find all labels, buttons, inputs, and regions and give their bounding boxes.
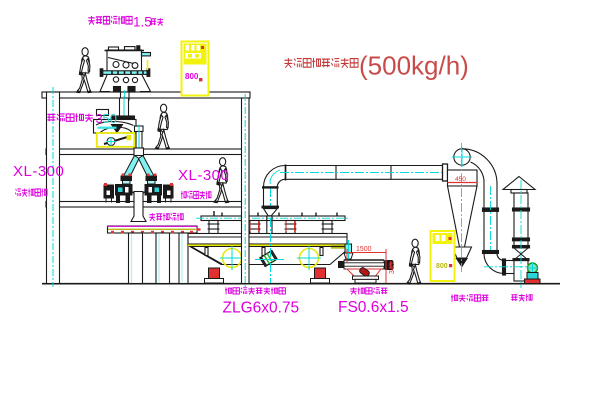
svg-text:50: 50 xyxy=(103,111,117,126)
svg-text:(500kg/h): (500kg/h) xyxy=(359,51,469,81)
svg-text:800: 800 xyxy=(185,72,199,81)
svg-text:XL-300: XL-300 xyxy=(13,163,64,180)
svg-text:450: 450 xyxy=(455,176,466,183)
svg-text:345: 345 xyxy=(389,262,396,274)
svg-text:800: 800 xyxy=(436,263,448,270)
svg-text:FS0.6x1.5: FS0.6x1.5 xyxy=(338,299,409,316)
svg-text:1.5: 1.5 xyxy=(133,15,152,30)
svg-text:XL-300: XL-300 xyxy=(178,167,229,184)
svg-text:ZLG6x0.75: ZLG6x0.75 xyxy=(223,300,300,317)
svg-text:1500: 1500 xyxy=(356,246,372,253)
